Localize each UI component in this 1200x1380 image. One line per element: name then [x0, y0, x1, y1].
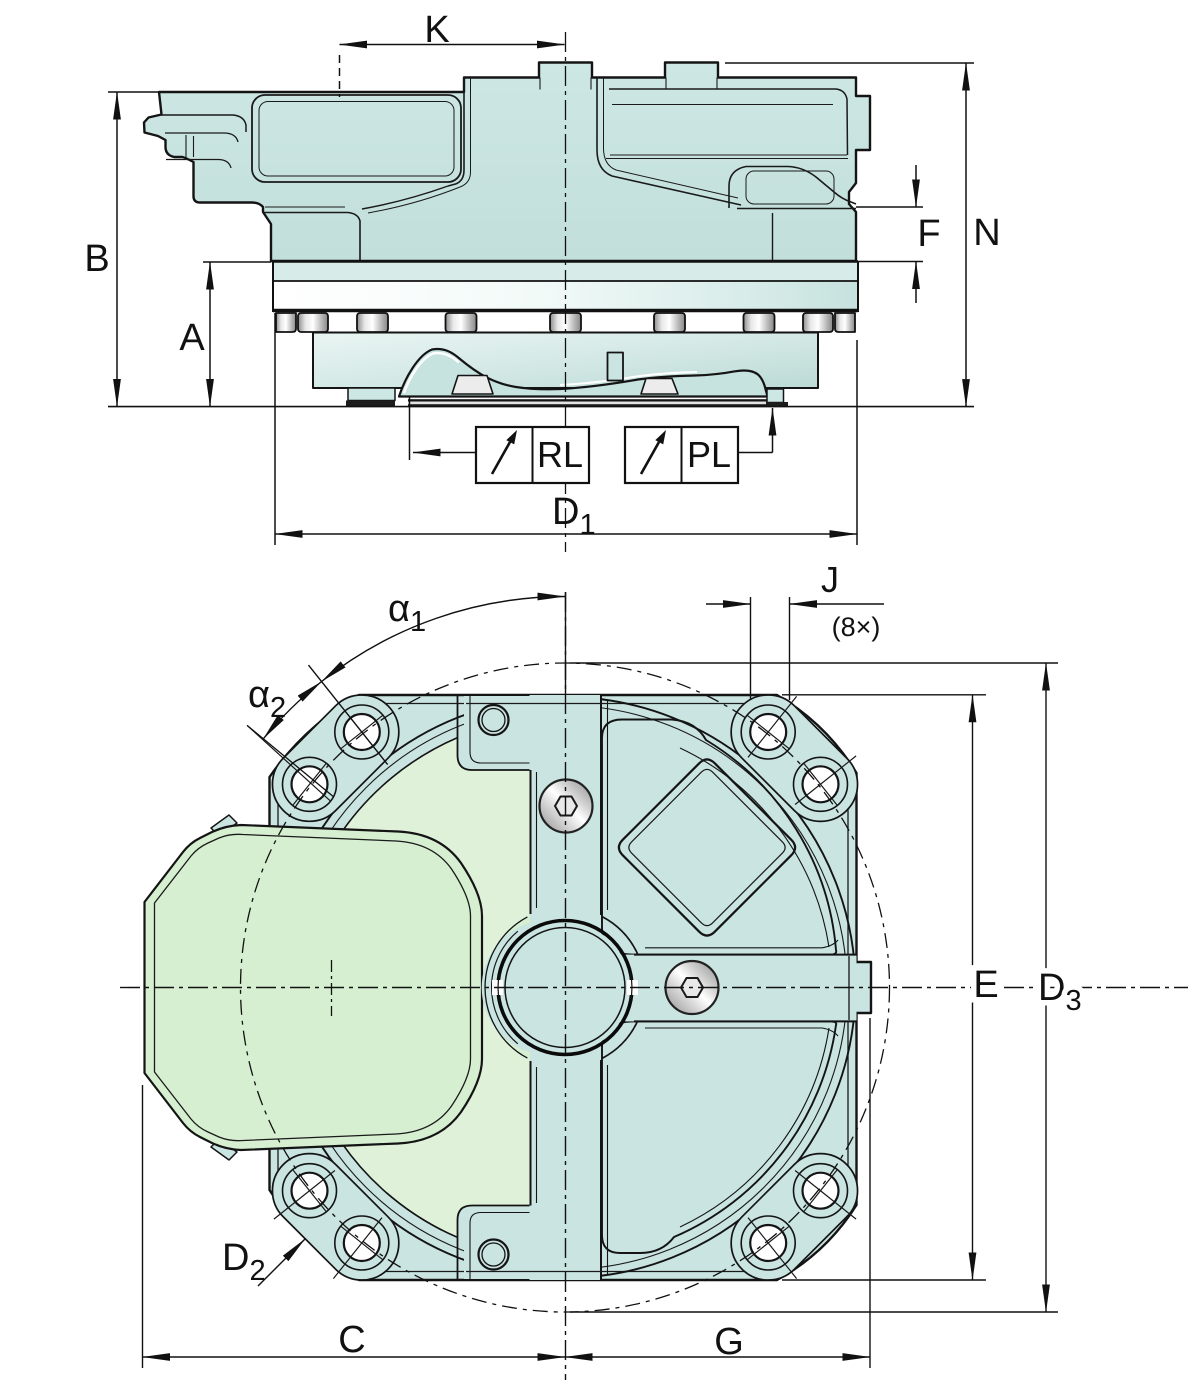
svg-text:A: A	[179, 317, 205, 359]
svg-text:D3: D3	[1038, 967, 1082, 1017]
svg-text:F: F	[917, 213, 940, 255]
svg-text:RL: RL	[537, 434, 583, 475]
svg-text:G: G	[714, 1321, 744, 1363]
svg-text:K: K	[424, 9, 449, 51]
svg-text:N: N	[973, 212, 1000, 254]
svg-text:J: J	[821, 559, 839, 600]
svg-text:D2: D2	[222, 1237, 266, 1287]
svg-text:(8×): (8×)	[832, 612, 881, 642]
svg-text:PL: PL	[687, 434, 731, 475]
svg-text:α2: α2	[248, 674, 286, 724]
svg-text:E: E	[973, 964, 998, 1006]
svg-text:B: B	[84, 238, 109, 280]
svg-text:C: C	[338, 1319, 365, 1361]
